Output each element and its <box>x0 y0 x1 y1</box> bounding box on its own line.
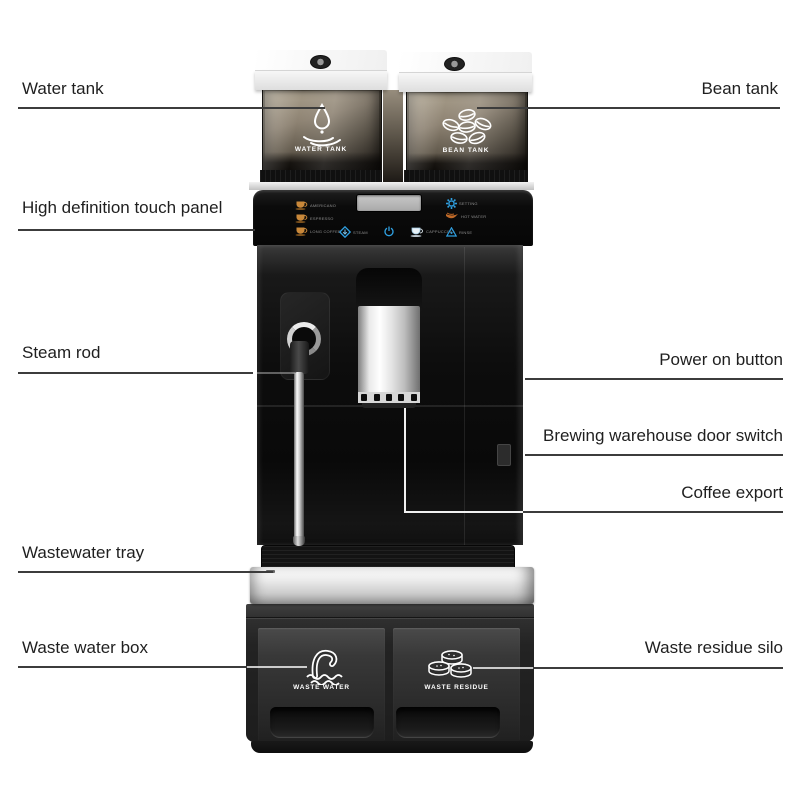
bottom-unit-seam <box>246 618 534 619</box>
drink-button-espresso[interactable]: ESPRESSO <box>295 213 334 223</box>
lcd-display <box>357 195 421 211</box>
function-label: RINSE <box>459 230 472 235</box>
coffee-cup-icon <box>295 200 308 210</box>
bean-tank-lid <box>399 52 532 92</box>
brand-logo-icon <box>310 55 331 69</box>
leader-coffee-export-vertical <box>404 408 406 513</box>
gear-icon <box>446 198 457 209</box>
coffee-spout-under <box>362 403 416 408</box>
water-tank-label: WATER TANK <box>262 146 380 153</box>
drip-grid <box>261 545 515 569</box>
hot-water-button[interactable]: HOT WATER <box>445 212 486 221</box>
leader-power-button <box>525 378 783 380</box>
steam-rod-collar[interactable] <box>290 341 309 374</box>
coffee-nozzles <box>358 392 420 403</box>
leader-brewing-switch <box>525 454 783 456</box>
annotation-power-button: Power on button <box>659 350 783 370</box>
annotation-wastewater-tray: Wastewater tray <box>22 543 144 563</box>
leader-touch-panel <box>18 229 255 231</box>
water-drop-icon <box>300 103 344 149</box>
annotation-waste-residue-silo: Waste residue silo <box>645 638 783 658</box>
coffee-beans-icon <box>438 107 494 147</box>
water-tank-lid-front <box>255 71 387 90</box>
power-touch-button[interactable] <box>384 226 394 237</box>
annotation-steam-rod: Steam rod <box>22 343 100 363</box>
waste-residue-handle[interactable] <box>396 707 500 738</box>
bean-tank-label: BEAN TANK <box>406 147 526 154</box>
annotation-touch-panel: High definition touch panel <box>22 198 222 218</box>
drink-button-long-coffee[interactable]: LONG COFFEE <box>295 226 341 236</box>
leader-waste-residue-on-machine <box>473 667 533 669</box>
waste-residue-icon <box>426 647 474 685</box>
leader-bean-tank <box>477 107 780 109</box>
leader-waste-water-box <box>18 666 247 668</box>
leader-coffee-export <box>523 511 783 513</box>
bean-tank-lid-top <box>399 52 532 73</box>
annotation-water-tank: Water tank <box>22 79 104 99</box>
leader-coffee-export-on-machine <box>404 511 523 513</box>
leader-steam-rod <box>18 372 253 374</box>
coffee-cup-icon <box>295 226 308 236</box>
water-tank-base <box>260 170 382 182</box>
function-label: STEAM <box>353 230 368 235</box>
waste-water-icon <box>305 645 347 685</box>
leader-wastewater-tray <box>18 571 273 573</box>
leader-waste-residue-silo <box>533 667 783 669</box>
steam-rod-tip <box>293 536 305 546</box>
annotation-coffee-export: Coffee export <box>681 483 783 503</box>
brand-logo-icon <box>444 57 465 71</box>
between-tanks-panel <box>383 90 403 182</box>
annotation-brewing-switch: Brewing warehouse door switch <box>543 426 783 446</box>
rinse-button[interactable]: RINSE <box>446 227 472 237</box>
annotation-bean-tank: Bean tank <box>701 79 778 99</box>
bean-tank-base <box>404 170 528 182</box>
coffee-cup-icon <box>295 213 308 223</box>
annotation-waste-water-box: Waste water box <box>22 638 148 658</box>
door-seam <box>464 247 465 545</box>
waste-water-label: WASTE WATER <box>258 684 385 691</box>
steam-rod[interactable] <box>294 372 304 538</box>
setting-label: HOT WATER <box>461 214 486 219</box>
rinse-triangle-icon <box>446 227 457 237</box>
brewing-door-switch[interactable] <box>497 444 511 466</box>
leader-steam-rod-on-machine <box>253 372 295 374</box>
hot-water-icon <box>445 212 459 221</box>
drink-button-americano[interactable]: AMERICANO <box>295 200 336 210</box>
coffee-spout[interactable] <box>358 306 420 394</box>
setting-label: SETTING <box>459 201 478 206</box>
waste-residue-label: WASTE RESIDUE <box>393 684 520 691</box>
wastewater-tray[interactable] <box>250 567 534 604</box>
drink-label: LONG COFFEE <box>310 229 341 234</box>
setting-button[interactable]: SETTING <box>446 198 478 209</box>
leader-water-tank <box>18 107 325 109</box>
drink-label: ESPRESSO <box>310 216 334 221</box>
waste-water-handle[interactable] <box>270 707 374 738</box>
leader-waste-water-box-on-machine <box>247 666 307 668</box>
bean-tank-lid-front <box>399 73 532 92</box>
machine-base <box>251 741 533 753</box>
coffee-machine-diagram: WATER TANK BEAN TANK AMERICANO ESPRESSO … <box>0 0 800 800</box>
steam-button[interactable]: STEAM <box>339 226 368 238</box>
drink-label: AMERICANO <box>310 203 336 208</box>
steam-diamond-icon <box>339 226 351 238</box>
power-icon <box>384 226 394 237</box>
machine-top-shoulder <box>249 182 534 190</box>
cappuccino-cup-icon <box>410 226 424 237</box>
